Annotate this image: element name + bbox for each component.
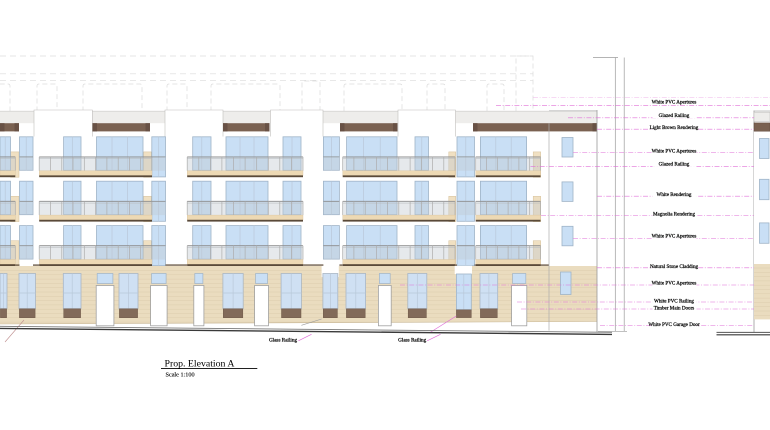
svg-text:White PVC Apertures: White PVC Apertures	[652, 99, 697, 105]
svg-text:White PVC Garage Door: White PVC Garage Door	[648, 322, 700, 328]
svg-text:White PVC Apertures: White PVC Apertures	[652, 234, 697, 240]
svg-text:Glazed Railing: Glazed Railing	[659, 162, 690, 168]
svg-text:Scale 1:100: Scale 1:100	[166, 372, 195, 379]
svg-text:White PVC Apertures: White PVC Apertures	[652, 281, 697, 287]
svg-text:Natural Stone Cladding: Natural Stone Cladding	[650, 264, 699, 270]
svg-text:White PVC Railing: White PVC Railing	[654, 298, 694, 304]
svg-text:Glass Railing: Glass Railing	[398, 337, 427, 343]
svg-text:Timber Main Doors: Timber Main Doors	[654, 305, 695, 311]
svg-text:White Rendering: White Rendering	[657, 192, 692, 198]
svg-text:Glass Railing: Glass Railing	[269, 337, 298, 343]
svg-text:Magnolia Rendering: Magnolia Rendering	[653, 212, 695, 218]
svg-text:Glazed Railing: Glazed Railing	[659, 113, 690, 119]
svg-text:Prop. Elevation A: Prop. Elevation A	[165, 358, 235, 369]
svg-text:White PVC Apertures: White PVC Apertures	[652, 148, 697, 154]
svg-text:Light Brown Rendering: Light Brown Rendering	[650, 125, 699, 131]
